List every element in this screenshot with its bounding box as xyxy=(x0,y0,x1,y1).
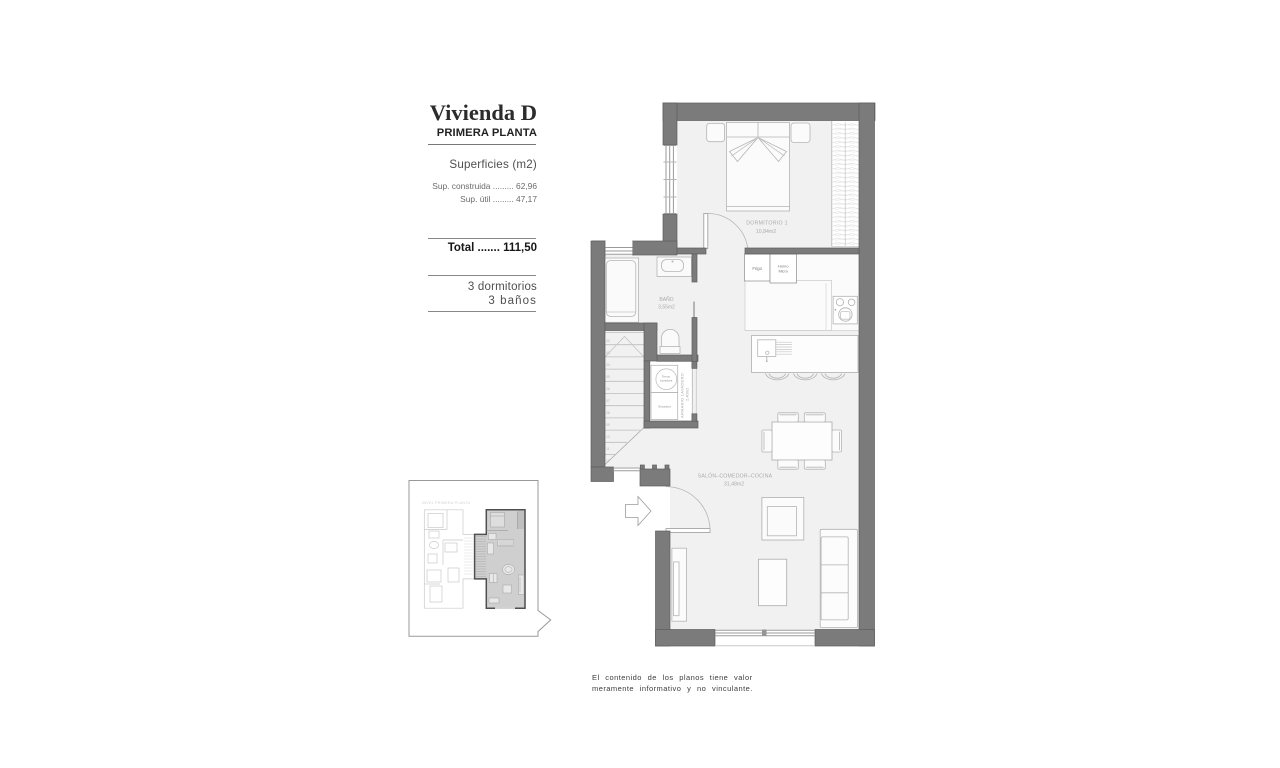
svg-text:3,55m2: 3,55m2 xyxy=(658,305,675,311)
svg-text:2,40m2: 2,40m2 xyxy=(684,387,689,401)
svg-text:07: 07 xyxy=(606,399,610,403)
svg-text:Frigo: Frigo xyxy=(752,266,762,271)
svg-text:NIVEL PRIMERA PLANTA: NIVEL PRIMERA PLANTA xyxy=(422,501,470,505)
svg-text:08: 08 xyxy=(606,411,610,415)
svg-text:04: 04 xyxy=(606,363,610,367)
svg-text:05: 05 xyxy=(606,375,610,379)
svg-text:Secadora: Secadora xyxy=(658,404,671,408)
svg-text:Lavadora: Lavadora xyxy=(660,379,673,383)
svg-text:03: 03 xyxy=(606,351,610,355)
svg-text:DORMITORIO 1: DORMITORIO 1 xyxy=(746,221,788,227)
svg-text:10,84m2: 10,84m2 xyxy=(756,229,776,235)
svg-text:Micro: Micro xyxy=(778,269,788,274)
svg-text:09: 09 xyxy=(606,423,610,427)
svg-text:11: 11 xyxy=(606,447,610,451)
svg-text:06: 06 xyxy=(606,387,610,391)
svg-text:02: 02 xyxy=(606,339,610,343)
svg-text:10: 10 xyxy=(606,435,610,439)
svg-text:12: 12 xyxy=(606,459,610,463)
svg-text:SALÓN–COMEDOR–COCINA: SALÓN–COMEDOR–COCINA xyxy=(698,473,773,480)
svg-text:BAÑO: BAÑO xyxy=(659,296,673,303)
svg-text:31,48m2: 31,48m2 xyxy=(724,482,744,488)
